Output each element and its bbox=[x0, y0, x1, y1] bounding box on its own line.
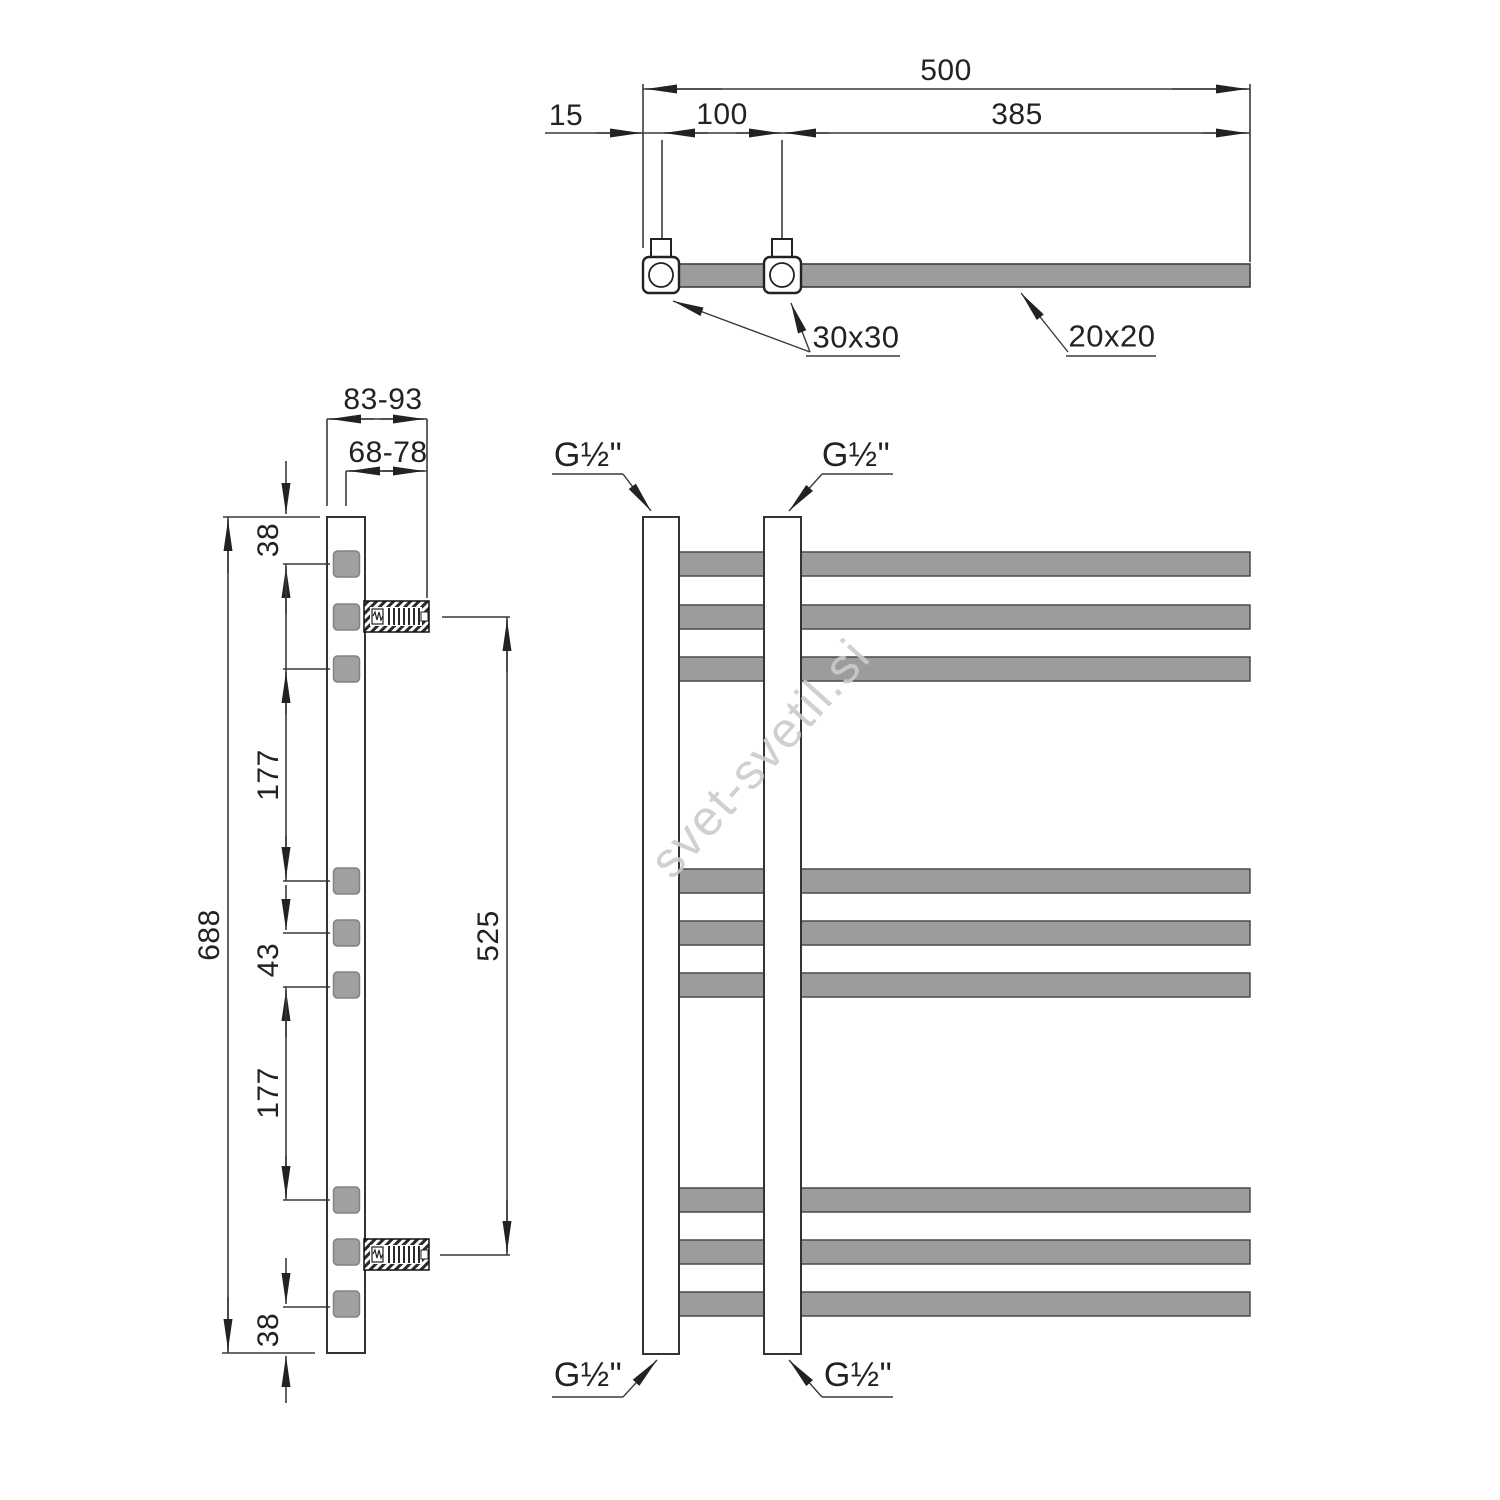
thread-label-bottom-left: G½" bbox=[554, 1358, 622, 1392]
dim-bracket-span: 525 bbox=[474, 910, 504, 962]
thread-label-top-left: G½" bbox=[554, 438, 622, 472]
top-view-body bbox=[643, 239, 1250, 293]
leader-thread-bl bbox=[623, 1360, 657, 1397]
dim-cluster-gap-lower: 177 bbox=[254, 1067, 284, 1119]
dim-total-width: 500 bbox=[920, 56, 972, 86]
fitting-bore-2 bbox=[770, 263, 794, 287]
dim-axis-depth: 68-78 bbox=[348, 438, 427, 468]
dim-connection-spacing: 100 bbox=[696, 100, 748, 130]
dim-rung-gap: 43 bbox=[254, 943, 284, 977]
wall-bracket-upper bbox=[364, 601, 429, 632]
radiator-technical-drawing: 500 15 100 385 30x30 20x20 83-93 68-78 3… bbox=[0, 0, 1500, 1500]
dim-right-span: 385 bbox=[991, 100, 1043, 130]
side-view-body bbox=[327, 517, 429, 1353]
dim-bottom-gap: 38 bbox=[254, 1313, 284, 1347]
leader-thread-br bbox=[789, 1360, 822, 1397]
leader-thread-tl bbox=[623, 474, 651, 511]
leader-30x30-b bbox=[791, 303, 810, 352]
collector-tube-right bbox=[764, 517, 801, 1354]
collector-tube-left bbox=[643, 517, 679, 1354]
leader-30x30-a bbox=[673, 301, 810, 352]
rung-tube-top-view bbox=[661, 264, 1250, 287]
rung-sections bbox=[334, 551, 360, 1317]
dim-cluster-gap-upper: 177 bbox=[254, 749, 284, 801]
valve-stub-1 bbox=[651, 239, 671, 258]
front-view-body bbox=[643, 517, 1250, 1354]
fitting-bore-1 bbox=[649, 263, 673, 287]
thread-label-top-right: G½" bbox=[822, 438, 890, 472]
dimension-ticks bbox=[283, 564, 330, 1307]
wall-bracket-lower bbox=[364, 1239, 429, 1270]
valve-stub-2 bbox=[772, 239, 792, 258]
top-view bbox=[545, 84, 1250, 262]
thread-label-bottom-right: G½" bbox=[824, 1358, 892, 1392]
dim-wall-depth: 83-93 bbox=[343, 385, 422, 415]
label-rung-profile: 20x20 bbox=[1069, 321, 1156, 352]
leader-20x20 bbox=[1021, 293, 1068, 352]
leader-thread-tr bbox=[789, 474, 822, 511]
dim-edge-offset: 15 bbox=[549, 101, 583, 131]
dim-total-height: 688 bbox=[195, 909, 225, 961]
label-collector-profile: 30x30 bbox=[813, 322, 900, 353]
dim-top-gap: 38 bbox=[254, 523, 284, 557]
